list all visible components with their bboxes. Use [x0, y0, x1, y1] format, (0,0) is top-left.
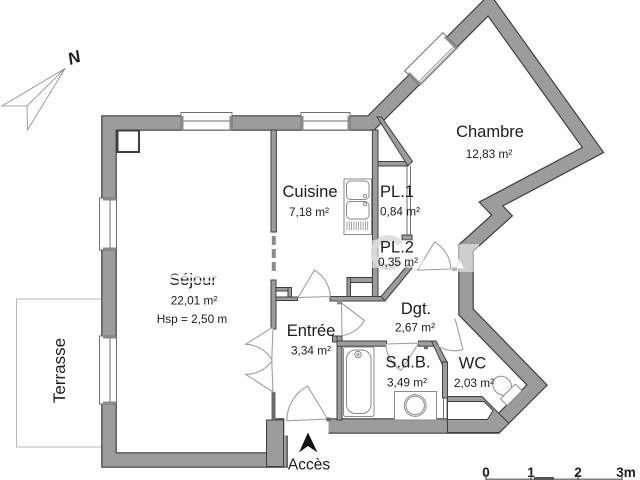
svg-text:3,49 m²: 3,49 m² — [387, 376, 427, 390]
svg-text:Dgt.: Dgt. — [401, 300, 431, 318]
svg-text:Entrée: Entrée — [287, 322, 336, 340]
svg-text:PL.2: PL.2 — [380, 239, 414, 257]
svg-text:Cuisine: Cuisine — [282, 183, 337, 201]
svg-text:0,35 m²: 0,35 m² — [378, 255, 418, 269]
svg-text:WC: WC — [459, 355, 487, 373]
svg-text:3m: 3m — [616, 465, 636, 480]
svg-text:0,84 m²: 0,84 m² — [380, 205, 420, 219]
svg-text:Séjour: Séjour — [169, 271, 217, 289]
svg-text:S.d.B.: S.d.B. — [386, 354, 431, 372]
svg-text:PL.1: PL.1 — [380, 183, 414, 201]
svg-text:7,18 m²: 7,18 m² — [289, 205, 329, 219]
svg-text:Chambre: Chambre — [456, 123, 524, 141]
svg-text:Accès: Accès — [288, 457, 330, 474]
svg-text:22,01 m²: 22,01 m² — [171, 294, 218, 308]
svg-text:Terrasse: Terrasse — [50, 338, 69, 403]
svg-text:3,34 m²: 3,34 m² — [291, 344, 331, 358]
svg-text:12,83 m²: 12,83 m² — [466, 147, 513, 161]
svg-text:2,67 m²: 2,67 m² — [395, 321, 435, 335]
svg-text:2,03 m²: 2,03 m² — [454, 376, 494, 390]
svg-text:Hsp = 2,50 m: Hsp = 2,50 m — [157, 312, 228, 326]
